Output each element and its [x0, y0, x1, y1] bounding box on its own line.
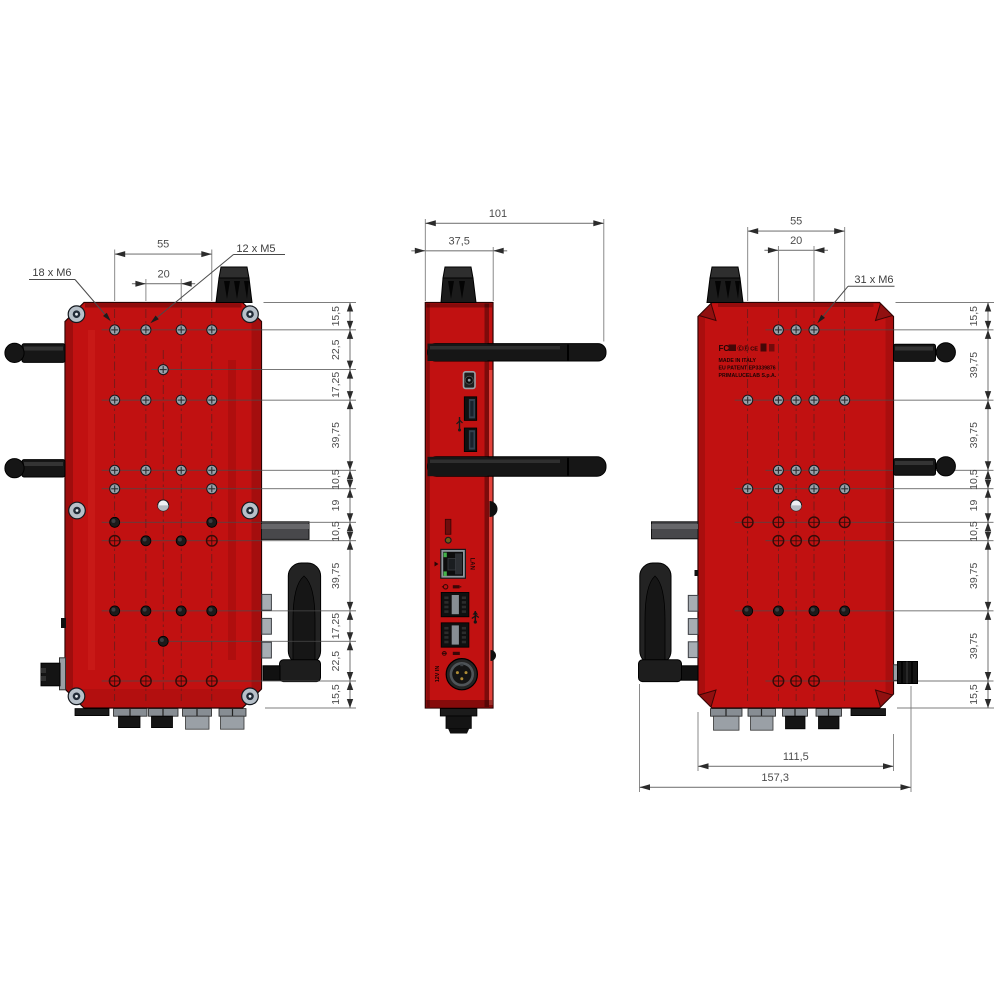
svg-text:15,5: 15,5 — [330, 684, 342, 705]
svg-text:22,5: 22,5 — [330, 339, 342, 360]
svg-text:111,5: 111,5 — [783, 751, 809, 763]
svg-text:19: 19 — [968, 500, 980, 512]
svg-text:22,5: 22,5 — [330, 651, 342, 672]
svg-text:10,5: 10,5 — [968, 469, 980, 490]
svg-text:20: 20 — [790, 235, 802, 247]
svg-text:157,3: 157,3 — [761, 772, 789, 784]
svg-text:LAN: LAN — [469, 558, 475, 570]
svg-text:39,75: 39,75 — [330, 422, 342, 448]
svg-text:10,5: 10,5 — [330, 521, 342, 542]
svg-text:39,75: 39,75 — [968, 633, 980, 659]
svg-text:15,5: 15,5 — [968, 684, 980, 705]
svg-text:12 x M5: 12 x M5 — [236, 243, 275, 255]
svg-text:10,5: 10,5 — [968, 521, 980, 542]
svg-text:15,5: 15,5 — [968, 306, 980, 327]
svg-text:20: 20 — [157, 269, 169, 281]
svg-text:17,25: 17,25 — [330, 372, 342, 398]
svg-text:19: 19 — [330, 500, 342, 512]
svg-text:39,75: 39,75 — [968, 563, 980, 589]
svg-text:39,75: 39,75 — [330, 563, 342, 589]
svg-text:39,75: 39,75 — [968, 352, 980, 378]
svg-text:55: 55 — [157, 239, 169, 251]
svg-text:39,75: 39,75 — [968, 422, 980, 448]
svg-text:17,25: 17,25 — [330, 613, 342, 639]
svg-text:EU PATENT EP3339876: EU PATENT EP3339876 — [719, 366, 776, 372]
svg-text:MADE IN ITALY: MADE IN ITALY — [719, 358, 757, 364]
svg-text:18 x M6: 18 x M6 — [32, 267, 71, 279]
svg-text:10,5: 10,5 — [330, 469, 342, 490]
svg-text:101: 101 — [489, 208, 507, 220]
svg-text:FC: FC — [719, 344, 730, 353]
svg-text:37,5: 37,5 — [448, 236, 469, 248]
svg-text:31 x M6: 31 x M6 — [854, 274, 893, 286]
svg-text:15,5: 15,5 — [330, 306, 342, 327]
svg-text:12V IN: 12V IN — [435, 666, 441, 683]
svg-text:55: 55 — [790, 216, 802, 228]
